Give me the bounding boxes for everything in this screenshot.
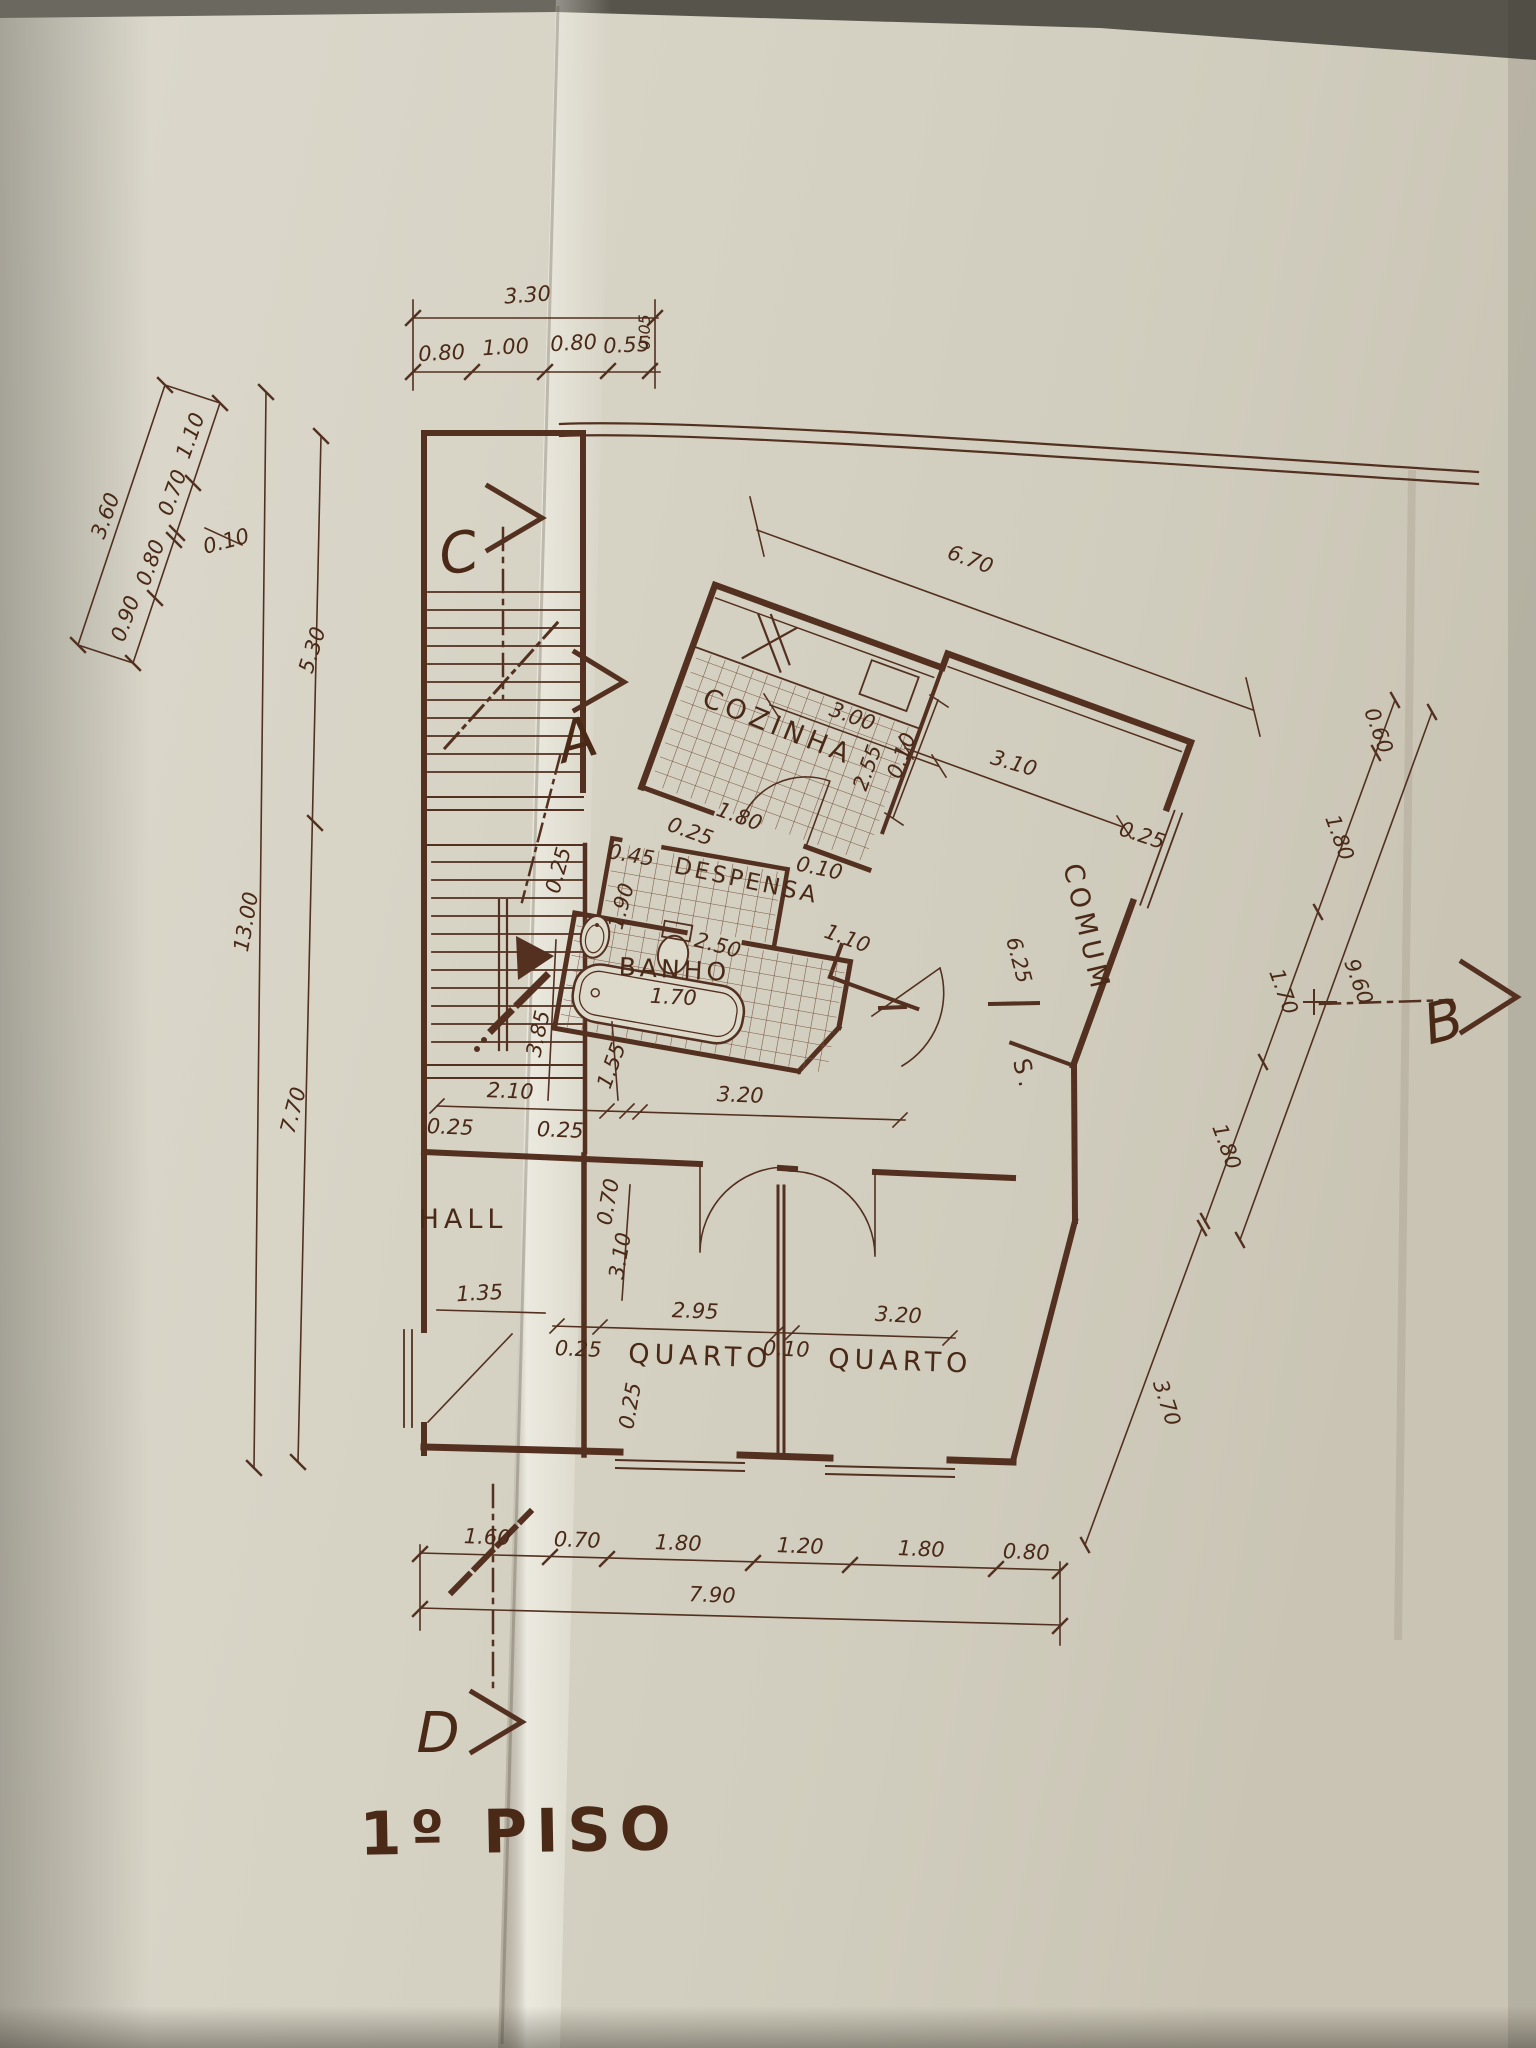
scanned-floor-plan-page: 3.30 0.80 1.00 0.80 0.55 0.05 3.60 1.10 … bbox=[0, 0, 1536, 2048]
dim-label: 0.70 bbox=[553, 1527, 601, 1553]
dim-label: 0.80 bbox=[1002, 1539, 1050, 1565]
dim-label: 3.20 bbox=[716, 1082, 764, 1108]
room-label-banho: BANHO bbox=[618, 952, 731, 987]
dim-label: 0.25 bbox=[426, 1114, 474, 1140]
section-letter-d: D bbox=[416, 1701, 459, 1766]
dim-label: 3.30 bbox=[503, 281, 551, 308]
paper-left-edge-shadow bbox=[0, 0, 150, 2048]
dim-label: 0.80 bbox=[550, 330, 598, 356]
dim-label: 1.35 bbox=[456, 1280, 504, 1306]
dim-label: 1.20 bbox=[776, 1533, 824, 1559]
room-label-quarto2: QUARTO bbox=[828, 1344, 973, 1380]
dim-label: 1.70 bbox=[649, 984, 697, 1010]
dim-label: 2.10 bbox=[486, 1078, 534, 1104]
photo-bottom-shadow bbox=[0, 2006, 1536, 2048]
dim-label: 1.60 bbox=[463, 1524, 511, 1550]
dim-label: 0.25 bbox=[536, 1117, 584, 1143]
room-label-quarto1: QUARTO bbox=[628, 1339, 773, 1375]
dim-label: 3.20 bbox=[874, 1302, 922, 1328]
dim-label: 1.80 bbox=[897, 1536, 945, 1562]
dim-label: 1.80 bbox=[654, 1530, 702, 1556]
dim-label: 1.00 bbox=[482, 334, 530, 360]
dim-label: 2.95 bbox=[671, 1298, 719, 1324]
floor-plan-drawing: 3.30 0.80 1.00 0.80 0.55 0.05 3.60 1.10 … bbox=[0, 0, 1536, 2048]
room-label-hall: HALL bbox=[419, 1204, 508, 1235]
dim-label: 0.05 bbox=[635, 314, 654, 350]
dim-label: 7.90 bbox=[688, 1582, 736, 1608]
page-title: 1º PISO bbox=[359, 1794, 680, 1870]
dim-label: 0.80 bbox=[418, 340, 466, 366]
dim-label: 0.25 bbox=[554, 1336, 602, 1362]
